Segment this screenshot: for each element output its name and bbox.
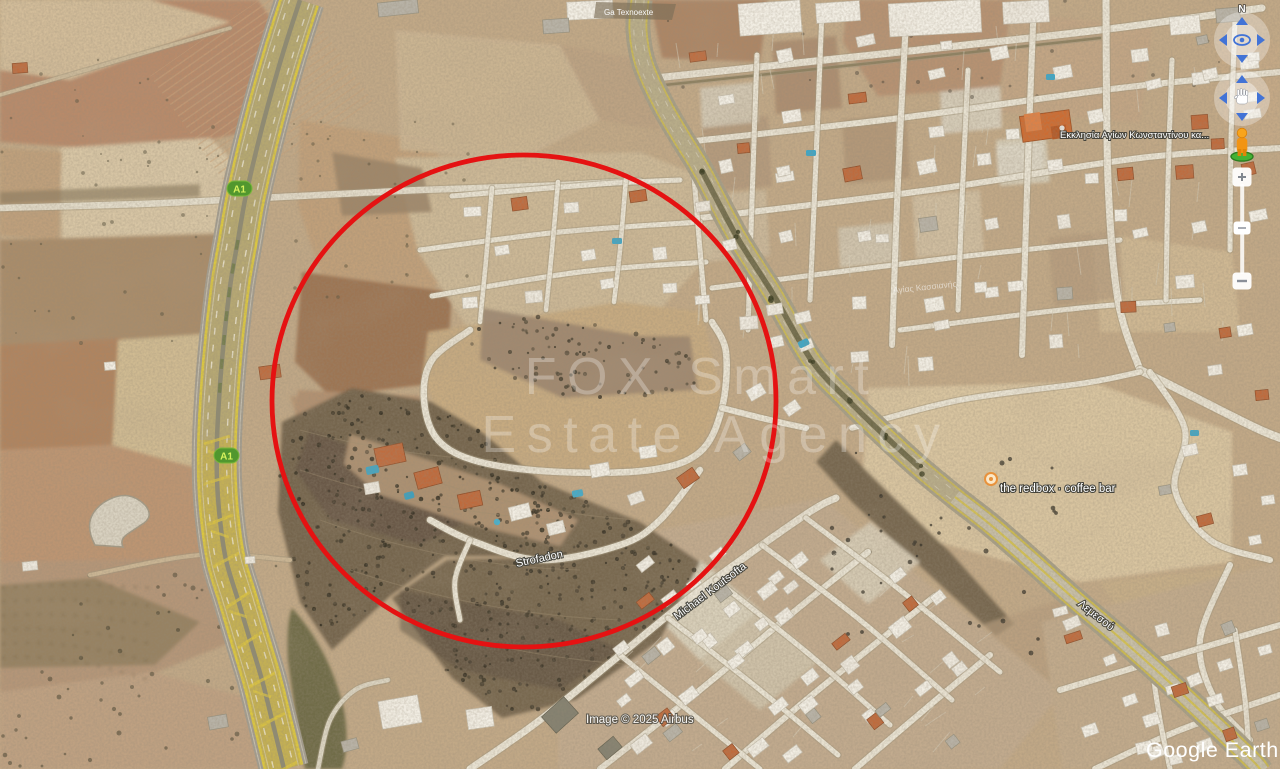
svg-text:Ga Texnoexte: Ga Texnoexte [604,8,654,17]
svg-text:A1: A1 [220,452,233,463]
svg-text:the redbox · coffee bar: the redbox · coffee bar [1000,483,1116,495]
svg-text:Google Earth: Google Earth [1146,738,1279,762]
svg-text:A1: A1 [233,185,246,196]
svg-text:Εκκλησία Αγίων Κωνσταντίνου κα: Εκκλησία Αγίων Κωνσταντίνου κα... [1060,130,1209,141]
svg-text:FOX Smart: FOX Smart [525,348,880,406]
svg-text:Image © 2025 Airbus: Image © 2025 Airbus [586,714,694,726]
svg-text:Estate Agency: Estate Agency [482,406,951,464]
